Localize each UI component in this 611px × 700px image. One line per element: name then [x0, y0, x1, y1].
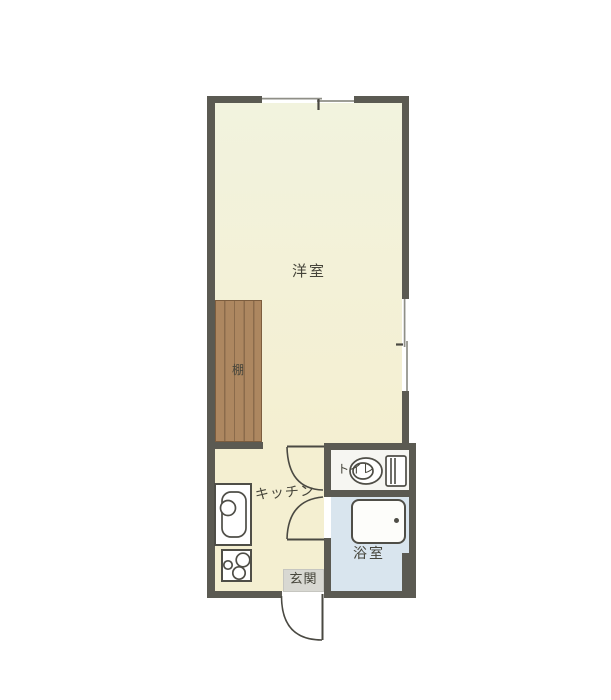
western-room-label: 洋室	[269, 263, 349, 280]
bathroom-label: 浴室	[339, 547, 399, 562]
floorplan-canvas: 洋室 棚 キッチン トイレ 浴室 玄関	[0, 0, 611, 700]
entrance-label: 玄関	[283, 573, 324, 587]
shelf-label: 棚	[218, 364, 258, 377]
stove-burners-icon	[224, 553, 250, 579]
window-right-icon	[396, 299, 407, 391]
entrance-door-swing-icon	[282, 594, 323, 640]
window-top-icon	[262, 99, 354, 110]
bathroom-door-swing-icon	[287, 497, 324, 540]
toilet-label: トイレ	[331, 463, 381, 476]
fixtures-overlay	[0, 0, 611, 700]
